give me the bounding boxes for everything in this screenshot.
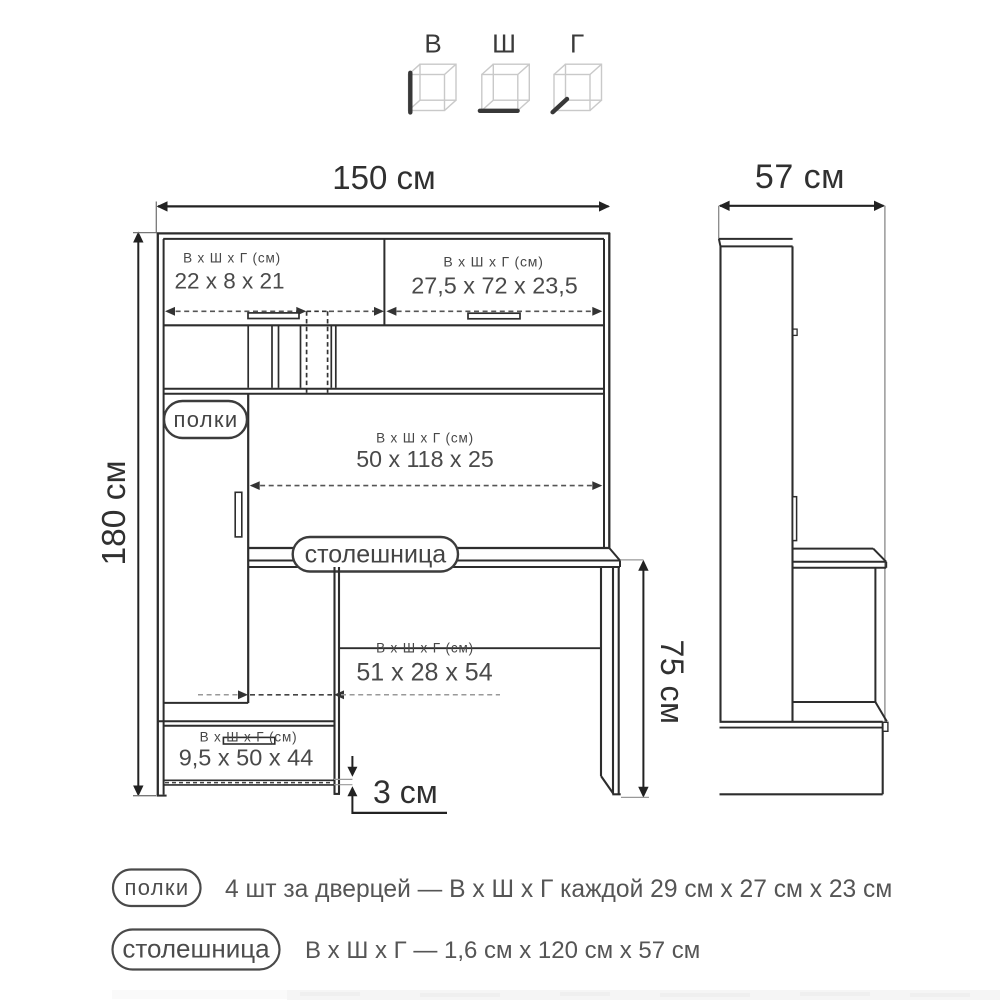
svg-text:27,5 х 72 х 23,5: 27,5 х 72 х 23,5 [411, 273, 577, 299]
svg-text:150 см: 150 см [332, 159, 435, 196]
svg-text:В х Ш х Г (см): В х Ш х Г (см) [443, 254, 543, 270]
svg-text:В х Ш х Г — 1,6 см х 120 см х: В х Ш х Г — 1,6 см х 120 см х 57 см [305, 937, 700, 964]
svg-text:4 шт за дверцей — В х Ш х Г ка: 4 шт за дверцей — В х Ш х Г каждой 29 см… [225, 876, 892, 903]
svg-text:22 х 8 х 21: 22 х 8 х 21 [174, 269, 284, 294]
svg-text:50 х 118 х 25: 50 х 118 х 25 [356, 446, 494, 472]
svg-text:51 х 28 х 54: 51 х 28 х 54 [356, 659, 492, 687]
svg-text:75 см: 75 см [654, 640, 690, 725]
svg-text:В: В [424, 29, 441, 59]
svg-text:В х Ш х Г (см): В х Ш х Г (см) [200, 730, 298, 745]
svg-text:В х Ш х Г (см): В х Ш х Г (см) [183, 251, 281, 266]
svg-text:В х Ш х Г (см): В х Ш х Г (см) [376, 431, 474, 446]
svg-text:полки: полки [125, 875, 190, 900]
svg-text:полки: полки [174, 407, 239, 432]
svg-text:В х Ш х Г (см): В х Ш х Г (см) [376, 640, 474, 655]
svg-text:Ш: Ш [492, 29, 516, 59]
svg-text:столешница: столешница [305, 541, 447, 569]
svg-text:3 см: 3 см [373, 774, 438, 810]
svg-text:Г: Г [570, 29, 584, 59]
svg-text:9,5 х 50 х 44: 9,5 х 50 х 44 [179, 745, 314, 771]
svg-text:180 см: 180 см [96, 461, 133, 566]
svg-text:57 см: 57 см [755, 158, 845, 196]
svg-text:столешница: столешница [122, 934, 270, 964]
